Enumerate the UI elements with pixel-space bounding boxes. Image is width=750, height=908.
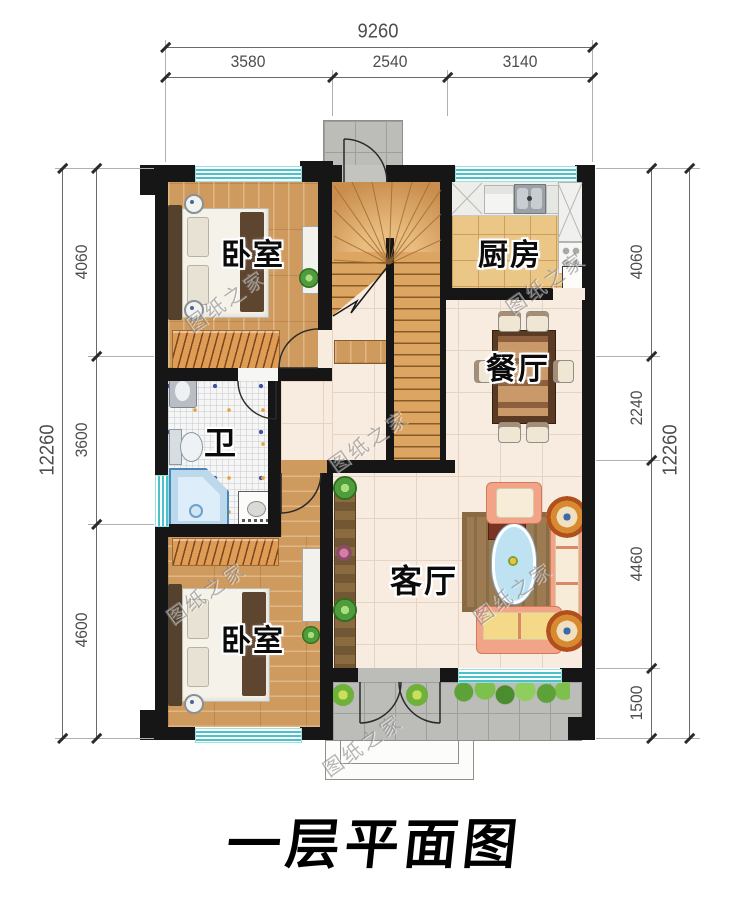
pillow — [187, 647, 209, 687]
window — [195, 166, 302, 182]
washer-buttons — [242, 519, 269, 522]
dim-line — [651, 168, 652, 738]
dim-segment: 4060 — [72, 245, 92, 280]
pillow — [187, 217, 209, 257]
dining-chair — [526, 311, 549, 332]
window — [155, 475, 169, 527]
wall-corner-block — [140, 710, 155, 740]
door-opening — [318, 330, 332, 368]
wall — [155, 368, 238, 381]
dim-segment: 3600 — [72, 423, 92, 458]
dim-total-height: 12260 — [37, 424, 60, 475]
shrub — [332, 684, 354, 706]
potted-plant — [302, 626, 320, 644]
dressing-table — [302, 548, 321, 622]
kitchen-sink — [514, 184, 546, 214]
bedside-lamp — [184, 694, 204, 714]
wardrobe — [172, 330, 280, 370]
wall-corner-block — [300, 161, 333, 182]
wall — [440, 300, 446, 460]
dim-total-height: 12260 — [660, 424, 683, 475]
dim-segment: 1500 — [627, 686, 647, 721]
wall-corner-block — [568, 717, 595, 740]
plan-title: 一层平面图 — [223, 800, 526, 879]
potted-plant — [333, 476, 357, 500]
dim-line — [165, 47, 592, 48]
washer-drum — [247, 501, 266, 517]
faucet — [527, 196, 532, 201]
wall — [278, 368, 332, 381]
room-label-kitchen: 厨房 — [478, 230, 542, 274]
dim-line — [165, 77, 592, 78]
room-label-bedroom-bottom: 卧室 — [221, 616, 285, 660]
wall — [155, 727, 195, 740]
stair-flight-left — [332, 252, 386, 316]
wall-corner-block — [140, 165, 155, 195]
wall — [268, 381, 281, 537]
dim-total-width: 9260 — [358, 21, 399, 44]
door-opening — [281, 460, 327, 473]
dim-line — [62, 168, 63, 738]
door-opening — [238, 368, 278, 381]
basin-bowl — [175, 381, 190, 401]
table-flower — [508, 556, 518, 566]
wall — [155, 165, 195, 182]
dim-segment: 2240 — [627, 391, 647, 426]
wall — [560, 668, 595, 682]
flower-decor — [336, 545, 352, 561]
dim-segment: 4460 — [627, 547, 647, 582]
bedroom-bottom-corridor-floor — [281, 473, 320, 537]
room-label-dining: 餐厅 — [486, 344, 550, 388]
extension-line — [55, 168, 154, 169]
toilet — [169, 428, 203, 464]
dining-chair — [498, 422, 521, 443]
tv-cabinet — [334, 486, 356, 674]
window — [195, 728, 302, 743]
potted-plant — [299, 268, 319, 288]
wall — [386, 165, 455, 182]
fridge — [484, 185, 514, 214]
wall — [440, 182, 452, 300]
armchair — [486, 482, 542, 524]
wall — [575, 165, 595, 182]
bed-headboard — [168, 205, 182, 320]
wall — [440, 668, 458, 682]
wall — [155, 182, 168, 475]
toilet-bowl — [180, 432, 203, 462]
floor-plan-canvas: 卧室 厨房 餐厅 卫 客厅 卧室 图纸之家 图纸之家 图纸之家 图纸之家 图纸之… — [0, 0, 750, 908]
dim-segment: 3140 — [503, 52, 538, 72]
hallway-floor — [281, 381, 332, 460]
extension-line — [165, 40, 166, 162]
shower-drain — [189, 504, 203, 518]
understairs-cabinet — [334, 340, 394, 364]
bedside-lamp — [184, 194, 204, 214]
wall — [333, 668, 358, 682]
wall — [320, 668, 333, 740]
shrub — [406, 684, 428, 706]
dim-segment: 4060 — [627, 245, 647, 280]
dining-chair — [526, 422, 549, 443]
window — [455, 166, 577, 182]
dim-segment: 4600 — [72, 613, 92, 648]
sink-basin — [531, 188, 542, 209]
extension-line — [592, 40, 593, 162]
room-label-living: 客厅 — [390, 556, 458, 602]
dim-line — [689, 168, 690, 738]
dim-line — [96, 168, 97, 738]
wall — [155, 524, 281, 537]
tall-cabinet — [558, 182, 584, 242]
extension-line — [55, 738, 154, 739]
dim-segment: 3580 — [231, 52, 266, 72]
door-opening — [342, 165, 386, 182]
entry-door-opening — [358, 668, 440, 682]
wall — [585, 288, 595, 300]
potted-plant — [333, 598, 357, 622]
wall — [155, 525, 168, 740]
wall — [318, 182, 332, 330]
armchair-cushion — [496, 488, 534, 518]
dining-chair — [553, 360, 574, 383]
window — [458, 669, 562, 683]
dim-segment: 2540 — [373, 52, 408, 72]
room-label-bathroom: 卫 — [204, 418, 238, 464]
